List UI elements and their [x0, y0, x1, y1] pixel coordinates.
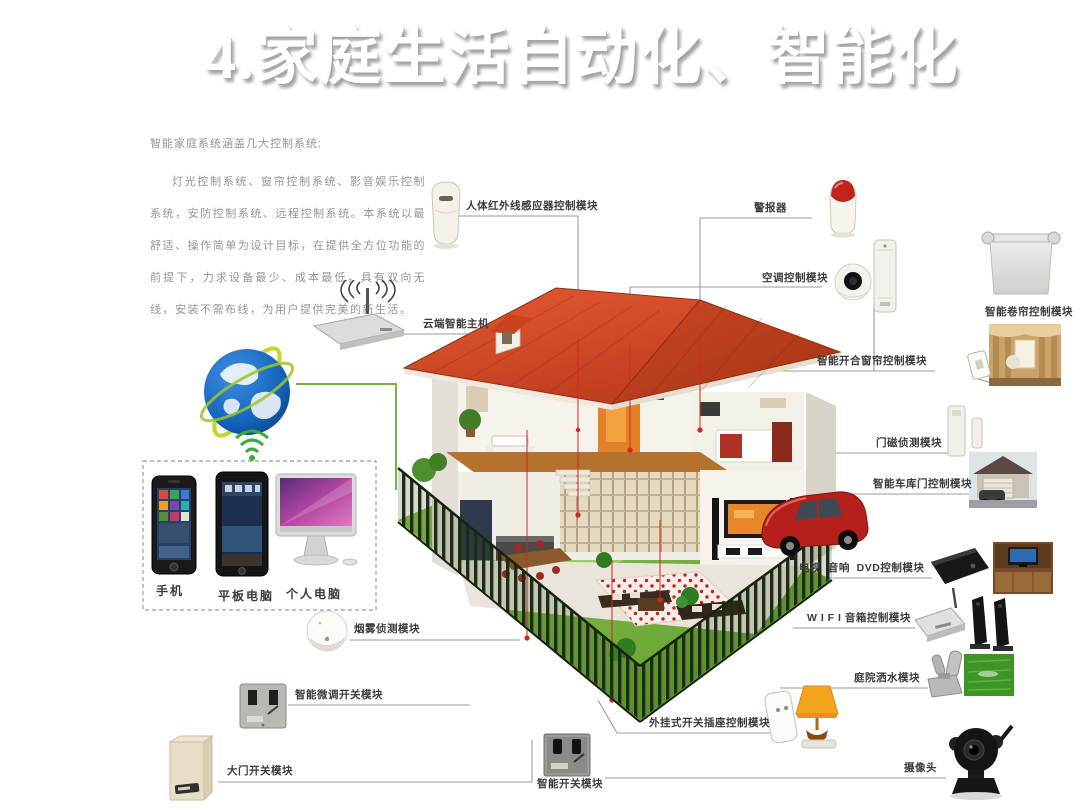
- smart-plug-lamp-icon: [764, 682, 854, 759]
- curtain-switch-icon: [966, 348, 994, 389]
- house-illustration: [0, 0, 1080, 810]
- speakers-icon: [966, 592, 1016, 661]
- smartphone-icon: [150, 474, 198, 581]
- cloud-host-router-icon: [310, 280, 410, 355]
- alarm-siren-icon: [822, 176, 864, 243]
- curtain-photo: [989, 324, 1061, 391]
- dimmer-switch-icon: [238, 682, 288, 735]
- gate-module-icon: [164, 734, 218, 810]
- ac-unit-icon: [872, 238, 898, 321]
- wifi-signal-icon: [228, 424, 276, 467]
- label-curtain: 智能开合窗帘控制模块: [817, 353, 927, 368]
- label-alarm: 警报器: [754, 200, 787, 215]
- pir-sensor-icon: [426, 180, 466, 255]
- sprinkler-icon: [922, 649, 970, 706]
- tv-cabinet-photo: [993, 542, 1053, 599]
- label-phone: 手机: [156, 582, 184, 599]
- roller-blind-icon: [978, 226, 1064, 307]
- label-smoke: 烟雾侦测模块: [354, 621, 420, 636]
- label-door-sensor: 门磁侦测模块: [876, 435, 942, 450]
- label-av: 电视 音响 DVD控制模块: [799, 560, 924, 575]
- label-gate: 大门开关模块: [227, 763, 293, 778]
- label-camera: 摄像头: [904, 760, 937, 775]
- label-wifi-speaker: W I F I 音箱控制模块: [807, 610, 911, 625]
- label-plug: 外挂式开关插座控制模块: [649, 715, 770, 730]
- label-switch: 智能开关模块: [537, 776, 603, 791]
- slide: 4.家庭生活自动化、智能化 智能家庭系统涵盖几大控制系统: 灯光控制系统、窗帘控…: [0, 0, 1080, 810]
- wifi-router-icon: [913, 586, 967, 649]
- label-roller: 智能卷帘控制模块: [985, 304, 1073, 319]
- smoke-detector-icon: [302, 609, 352, 662]
- label-sprinkler: 庭院洒水模块: [854, 670, 920, 685]
- garage-photo: [969, 452, 1037, 513]
- label-garage: 智能车库门控制模块: [873, 476, 972, 491]
- ip-camera-icon: [944, 722, 1018, 809]
- lawn-photo: [964, 654, 1014, 701]
- tablet-icon: [214, 470, 270, 583]
- label-tablet: 平板电脑: [218, 587, 274, 604]
- label-pir: 人体红外线感应器控制模块: [466, 198, 598, 213]
- label-ac: 空调控制模块: [762, 270, 828, 285]
- desktop-computer-icon: [274, 472, 364, 591]
- label-dimmer: 智能微调开关模块: [295, 687, 383, 702]
- label-pc: 个人电脑: [286, 585, 342, 602]
- label-host: 云端智能主机: [423, 316, 489, 331]
- ac-controller-icon: [832, 262, 874, 309]
